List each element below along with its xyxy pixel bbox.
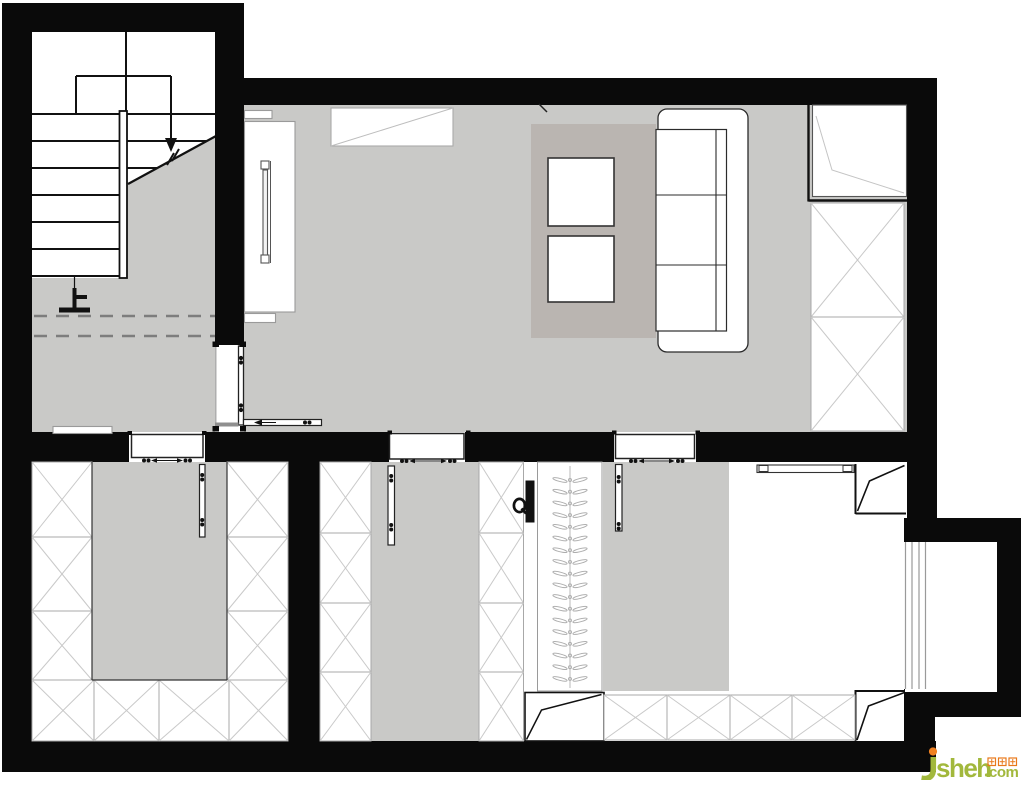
- svg-text:com: com: [989, 764, 1019, 780]
- svg-text:sheh: sheh: [936, 753, 991, 780]
